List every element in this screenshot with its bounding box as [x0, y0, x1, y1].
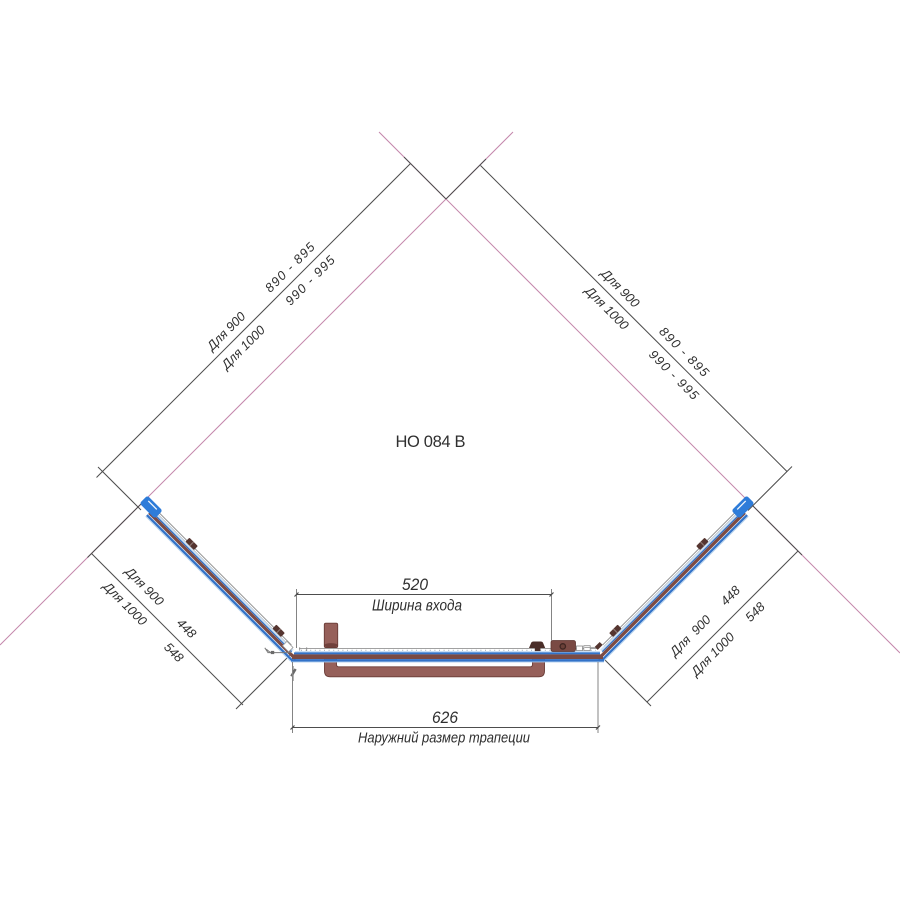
- svg-text:Ширина входа: Ширина входа: [372, 597, 462, 614]
- svg-text:HO 084 B: HO 084 B: [396, 433, 466, 451]
- svg-text:Наружний размер трапеции: Наружний размер трапеции: [358, 730, 531, 747]
- svg-text:520: 520: [402, 575, 428, 594]
- svg-text:626: 626: [432, 708, 458, 727]
